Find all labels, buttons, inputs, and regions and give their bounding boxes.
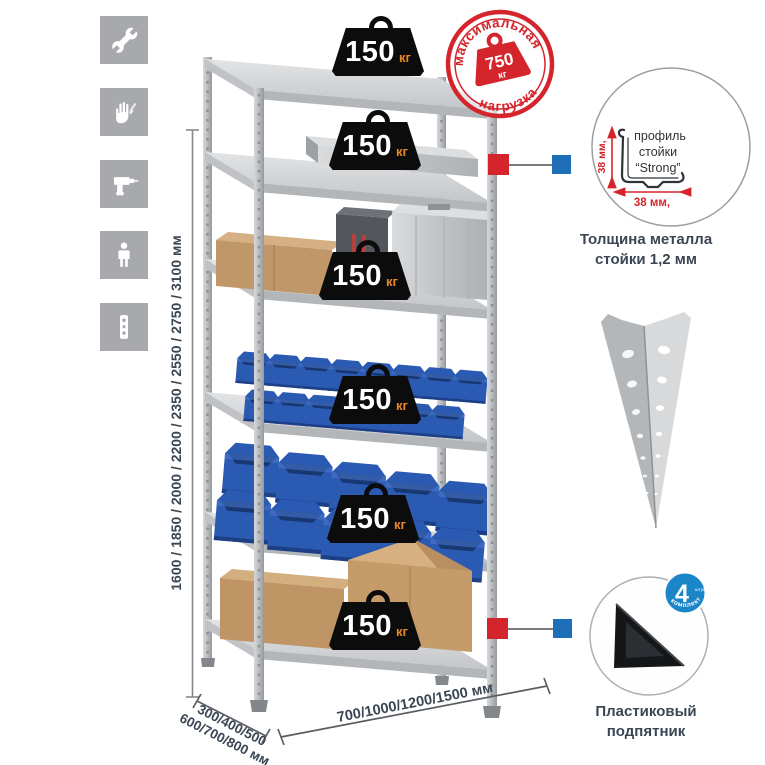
plastic-foot-circle: 4 штуки в комплекте	[586, 570, 736, 706]
callout-blue-square-bottom	[553, 619, 572, 638]
width-dimension-line	[278, 678, 550, 745]
corner-post-image	[598, 306, 694, 532]
svg-text:38 мм,: 38 мм,	[596, 140, 608, 173]
callout-red-square-top	[488, 154, 509, 175]
callout-red-square-bottom	[487, 618, 508, 639]
svg-text:профиль: профиль	[634, 129, 686, 143]
infographic-shelving-rack: 150кг 150кг 150кг 150кг 150кг 150кг макс…	[0, 0, 765, 765]
svg-text:стойки: стойки	[639, 145, 677, 159]
shelf-load-badge: 150кг	[329, 364, 421, 426]
profile-caption: Толщина металла стойки 1,2 мм	[566, 230, 726, 271]
foot-caption: Пластиковый подпятник	[566, 702, 726, 743]
height-dimension-label: 1600 / 1850 / 2000 / 2200 / 2350 / 2550 …	[168, 235, 184, 590]
shelf-load-badge: 150кг	[332, 16, 424, 78]
height-dimension-line	[186, 130, 199, 697]
svg-text:“Strong”: “Strong”	[635, 161, 680, 175]
shelf-load-badge: 150кг	[329, 110, 421, 172]
shelf-load-badge: 150кг	[319, 240, 411, 302]
callout-blue-square-top	[552, 155, 571, 174]
shelf-load-badge: 150кг	[329, 590, 421, 652]
shelf-load-badge: 150кг	[327, 483, 419, 545]
svg-text:штуки: штуки	[695, 587, 708, 592]
profile-detail-circle: 38 мм, 38 мм, профиль стойки “Strong”	[588, 64, 754, 230]
svg-text:38 мм,: 38 мм,	[634, 197, 670, 209]
